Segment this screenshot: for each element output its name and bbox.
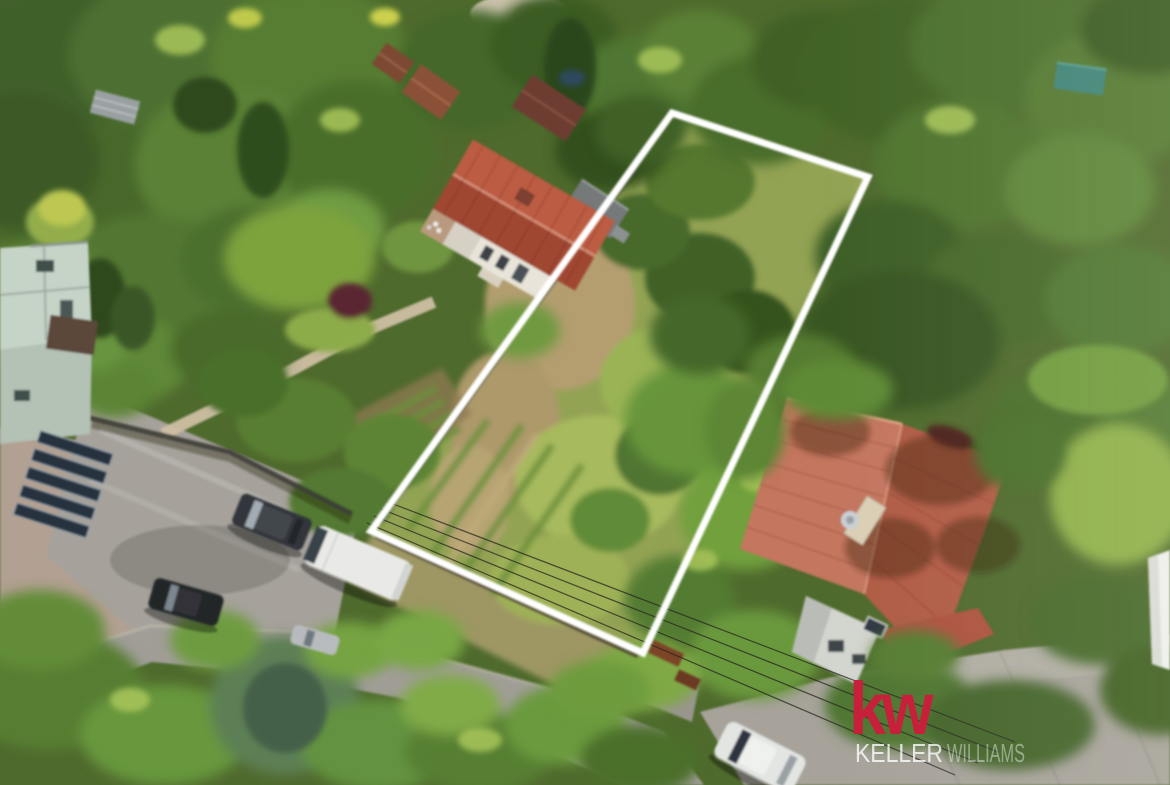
- williams-wordmark: WILLIAMS: [947, 738, 1025, 768]
- light-haze: [0, 0, 1170, 785]
- keller-wordmark: KELLER: [855, 738, 943, 768]
- aerial-photo: kw KELLER WILLIAMS: [0, 0, 1170, 785]
- aerial-photo-canvas: kw KELLER WILLIAMS: [0, 0, 1170, 785]
